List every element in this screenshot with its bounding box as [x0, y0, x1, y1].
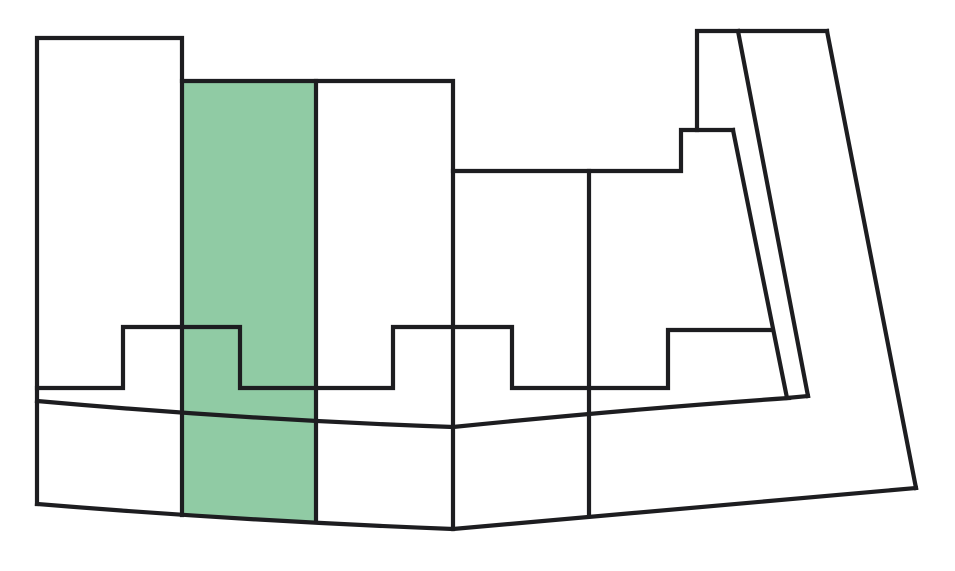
- highlighted-parcel[interactable]: [182, 81, 316, 521]
- lower-road-line: [37, 488, 916, 529]
- upper-road-line: [37, 398, 789, 427]
- outer-slant-edge: [827, 31, 916, 488]
- diagram-container: [0, 0, 955, 571]
- middle-band-top-step: [453, 130, 733, 171]
- top-right-parcel-edge: [697, 31, 827, 130]
- notched-boundary: [37, 327, 772, 388]
- parcel-map-svg: [0, 0, 955, 571]
- left-parcel-outline: [37, 38, 182, 515]
- inner-slant-left: [733, 130, 808, 398]
